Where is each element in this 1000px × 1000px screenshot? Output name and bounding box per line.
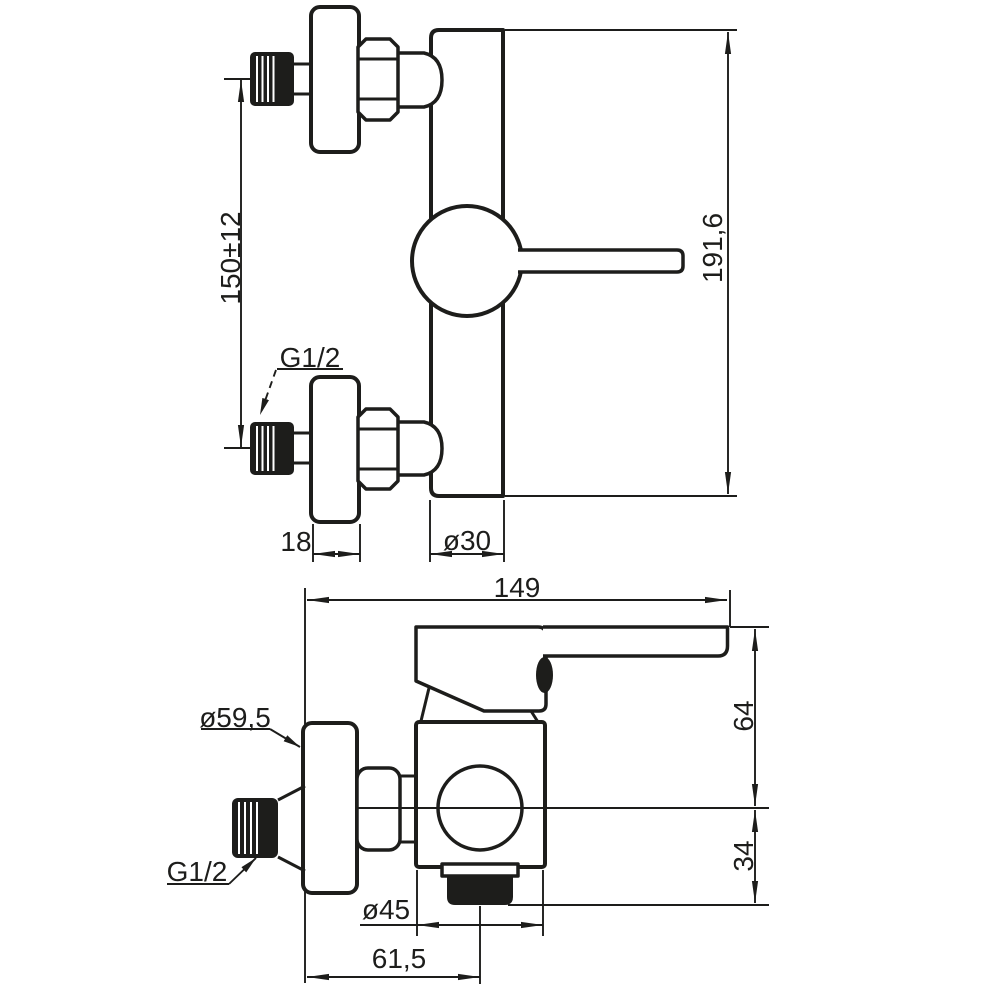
flange-leader xyxy=(270,729,300,747)
cartridge-circle-front xyxy=(412,206,522,316)
connection-dome-bottom xyxy=(396,422,442,475)
dim-connection-spacing: 150±12 xyxy=(215,211,246,304)
wall-flange-top xyxy=(311,7,359,152)
connection-dome-top xyxy=(396,53,442,107)
side-view xyxy=(232,588,769,983)
technical-drawing-page: 150±12 191,6 G1/2 18 ø30 xyxy=(0,0,1000,1000)
handle-cover-side xyxy=(416,627,546,711)
cone-edge xyxy=(278,857,305,871)
dim-depth: 149 xyxy=(494,572,541,603)
dim-flange-depth: 18 xyxy=(280,526,311,557)
hex-nut-bottom xyxy=(358,409,398,489)
outlet-thread xyxy=(447,876,513,905)
hex-nut-side xyxy=(357,768,400,850)
dim-body-diameter-front: ø30 xyxy=(443,525,491,556)
cover-base-edge xyxy=(421,688,429,721)
wall-flange-bottom xyxy=(311,377,359,522)
thread-label-side: G1/2 xyxy=(167,856,228,887)
mixer-dimension-drawing: 150±12 191,6 G1/2 18 ø30 xyxy=(0,0,1000,1000)
dim-overall-height: 191,6 xyxy=(697,213,728,283)
thread-leader-front xyxy=(260,370,276,415)
dim-body-diameter-side: ø45 xyxy=(362,894,410,925)
dim-spout-drop: 34 xyxy=(728,840,759,871)
front-view xyxy=(250,7,737,522)
lever-handle-front xyxy=(518,250,683,272)
lever-hinge xyxy=(536,657,553,693)
wall-flange-side xyxy=(303,723,357,893)
thread-leader-side xyxy=(229,858,256,884)
dim-spout-offset: 61,5 xyxy=(372,943,427,974)
outlet-lip xyxy=(442,864,518,876)
lever-handle-side xyxy=(543,627,728,656)
hex-nut-top xyxy=(358,39,398,120)
dim-handle-height: 64 xyxy=(728,700,759,731)
cone-edge xyxy=(278,786,305,800)
